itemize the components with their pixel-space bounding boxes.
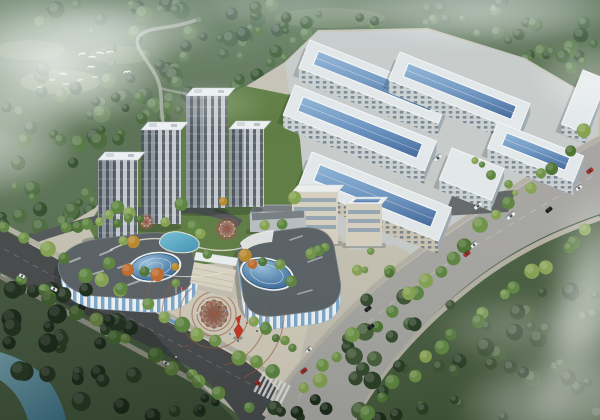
aerial-rendering-canvas (0, 0, 600, 420)
scene-svg (0, 0, 600, 420)
color-grade-overlay (0, 0, 600, 420)
